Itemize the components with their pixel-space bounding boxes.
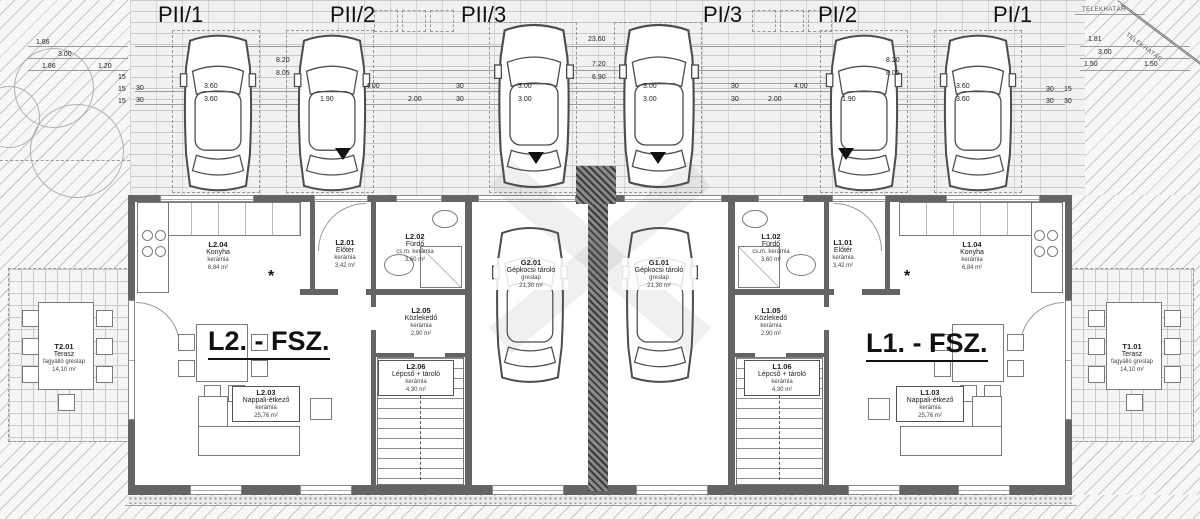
room-code: L1.01 xyxy=(814,238,872,247)
unit-title-right: L1. - FSZ. xyxy=(866,328,988,362)
dimension-label: 1.50 xyxy=(1144,61,1158,68)
wall xyxy=(862,289,900,295)
terrace-chair xyxy=(1164,338,1181,355)
room-material: kerámia xyxy=(381,379,451,386)
dimension-line xyxy=(370,70,830,71)
room-name: Terasz xyxy=(1100,351,1164,359)
entry-arrow-icon xyxy=(335,148,351,160)
room-name: Terasz xyxy=(32,351,96,359)
parking-label: PII/3 xyxy=(461,2,506,28)
dimension-line xyxy=(1080,70,1190,71)
room-code: L1.04 xyxy=(940,240,1004,249)
room-code: G1.01 xyxy=(622,258,696,267)
parking-label: PII/2 xyxy=(330,2,375,28)
room-name: Gépkocsi tároló xyxy=(622,267,696,275)
room-material: kerámia xyxy=(940,257,1004,264)
terrace-chair xyxy=(96,366,113,383)
room-name: Gépkocsi tároló xyxy=(494,267,568,275)
room-name: Nappali-étkező xyxy=(899,397,961,405)
dimension-label: 1.86 xyxy=(42,63,56,70)
window xyxy=(492,485,564,495)
room-name: Lépcső + tároló xyxy=(381,371,451,379)
hob-burner xyxy=(142,246,153,257)
dimension-line xyxy=(1080,58,1190,59)
terrace-glass-door xyxy=(1065,300,1072,420)
dimension-label: 3.00 xyxy=(58,51,72,58)
dining-chair xyxy=(178,334,195,351)
dimension-line xyxy=(28,70,128,71)
window xyxy=(958,485,1010,495)
dimension-line xyxy=(135,46,1065,47)
dimension-label: 1.90 xyxy=(320,96,334,103)
wall xyxy=(300,289,338,295)
dining-chair xyxy=(1007,334,1024,351)
dimension-label: 15 xyxy=(118,86,126,93)
hob-burner xyxy=(1047,246,1058,257)
dimension-label: 3.60 xyxy=(204,96,218,103)
terrace-chair xyxy=(1088,310,1105,327)
dining-chair xyxy=(178,360,195,377)
room-code: L2.06 xyxy=(381,362,451,371)
dimension-label: 3.00 xyxy=(643,96,657,103)
wall xyxy=(371,295,376,307)
dimension-label: 1.50 xyxy=(1084,61,1098,68)
window xyxy=(848,485,900,495)
garage-door xyxy=(624,195,722,202)
room-area: 25,76 m² xyxy=(899,413,961,420)
room-area: 4,30 m² xyxy=(747,387,817,394)
window xyxy=(758,195,804,202)
setback-dashed-line xyxy=(0,160,130,161)
room-area: 3,60 m² xyxy=(386,257,444,264)
entry-door-opening xyxy=(832,195,886,202)
room-label-g1-01: G1.01 Gépkocsi tároló greslap 21,30 m² xyxy=(622,258,696,290)
dimension-label: 8.05 xyxy=(886,70,900,77)
room-label-t1-01: T1.01 Terasz fagyálló greslap 14,10 m² xyxy=(1100,342,1164,374)
terrace-chair xyxy=(1164,366,1181,383)
dimension-label: 15 xyxy=(118,74,126,81)
room-area: 21,30 m² xyxy=(622,283,696,290)
wall xyxy=(824,295,829,307)
room-material: greslap xyxy=(494,275,568,282)
armchair xyxy=(310,398,332,420)
room-code: L1.05 xyxy=(736,306,806,315)
floor-plan-canvas: TELEKHATÁR TELEKHATÁR xyxy=(0,0,1200,519)
entry-door-opening xyxy=(314,195,368,202)
room-name: Fürdő xyxy=(742,241,800,249)
room-code: T2.01 xyxy=(32,342,96,351)
dimension-label: 8.05 xyxy=(276,70,290,77)
dimension-label: 2.00 xyxy=(768,96,782,103)
toilet xyxy=(432,210,458,228)
room-material: fagyálló greslap xyxy=(1100,359,1164,366)
wall xyxy=(824,330,829,491)
dimension-label: 30 xyxy=(731,96,739,103)
dimension-label: 1.81 xyxy=(1088,36,1102,43)
room-code: T1.01 xyxy=(1100,342,1164,351)
terrace-glass-door xyxy=(128,300,135,420)
dimension-label: 1.20 xyxy=(98,63,112,70)
room-name: Nappali-étkező xyxy=(235,397,297,405)
dimension-label: 30 xyxy=(731,83,739,90)
hob-burner xyxy=(142,230,153,241)
armchair xyxy=(868,398,890,420)
room-label-l1-06: L1.06 Lépcső + tároló kerámia 4,30 m² xyxy=(744,360,820,396)
dimension-line xyxy=(370,83,830,84)
room-code: L2.05 xyxy=(386,306,456,315)
parking-label: PI/1 xyxy=(993,2,1032,28)
room-name: Előtér xyxy=(814,247,872,255)
hob-burner xyxy=(155,230,166,241)
hob-burner xyxy=(1034,246,1045,257)
room-area: 14,10 m² xyxy=(32,367,96,374)
toilet xyxy=(742,210,768,228)
dimension-label: 4.00 xyxy=(794,83,808,90)
entry-arrow-icon xyxy=(650,152,666,164)
entry-arrow-icon xyxy=(838,148,854,160)
room-code: L2.02 xyxy=(386,232,444,241)
boundary-label: TELEKHATÁR xyxy=(1082,7,1126,13)
dimension-label: 30 xyxy=(456,83,464,90)
dimension-label: 30 xyxy=(1046,86,1054,93)
car-top-view-icon xyxy=(292,28,372,196)
tree-circle xyxy=(30,104,124,198)
dining-chair xyxy=(1007,360,1024,377)
room-label-l2-06: L2.06 Lépcső + tároló kerámia 4,30 m² xyxy=(378,360,454,396)
dimension-label: 15 xyxy=(1064,86,1072,93)
room-label-l2-05: L2.05 Közlekedő kerámia 2,90 m² xyxy=(386,306,456,338)
window xyxy=(636,485,708,495)
car-top-view-icon xyxy=(494,16,574,194)
window xyxy=(946,195,1040,202)
room-material: cs.m. kerámia xyxy=(386,249,444,256)
room-area: 3,60 m² xyxy=(742,257,800,264)
parking-label: PI/2 xyxy=(818,2,857,28)
room-material: kerámia xyxy=(386,323,456,330)
room-label-g2-01: G2.01 Gépkocsi tároló greslap 21,30 m² xyxy=(494,258,568,290)
window xyxy=(300,485,352,495)
hob-burner xyxy=(155,246,166,257)
room-area: 3,42 m² xyxy=(316,263,374,270)
dimension-label: 3.60 xyxy=(956,83,970,90)
wall-garage-right xyxy=(728,202,735,491)
ground-hatch-top-right xyxy=(1085,0,1200,195)
planter-dashed xyxy=(780,10,804,32)
parking-label: PI/3 xyxy=(703,2,742,28)
car-top-view-icon xyxy=(492,216,568,392)
dimension-label: 7.20 xyxy=(592,61,606,68)
room-material: kerámia xyxy=(235,405,297,412)
dimension-label: 30 xyxy=(1046,98,1054,105)
room-name: Konyha xyxy=(186,249,250,257)
room-material: kerámia xyxy=(747,379,817,386)
room-area: 14,10 m² xyxy=(1100,367,1164,374)
room-area: 6,84 m² xyxy=(940,265,1004,272)
room-code: L2.04 xyxy=(186,240,250,249)
room-label-l1-05: L1.05 Közlekedő kerámia 2,90 m² xyxy=(736,306,806,338)
dimension-label: 3.00 xyxy=(518,83,532,90)
room-area: 21,30 m² xyxy=(494,283,568,290)
wall xyxy=(885,202,890,292)
entry-arrow-icon xyxy=(528,152,544,164)
dining-chair xyxy=(251,360,268,377)
room-code: G2.01 xyxy=(494,258,568,267)
room-code: L2.03 xyxy=(235,388,297,397)
car-top-view-icon xyxy=(824,28,904,196)
terrace-chair xyxy=(96,310,113,327)
dimension-line xyxy=(125,505,1077,506)
room-label-l2-03: L2.03 Nappali-étkező kerámia 25,76 m² xyxy=(232,386,300,422)
garage-door xyxy=(478,195,576,202)
room-label-l1-04: L1.04 Konyha kerámia 6,84 m² xyxy=(940,240,1004,272)
terrace-chair xyxy=(58,394,75,411)
parking-label: PII/1 xyxy=(158,2,203,28)
room-name: Előtér xyxy=(316,247,374,255)
dimension-label: 30 xyxy=(136,85,144,92)
room-label-l2-04: L2.04 Konyha kerámia 6,84 m² xyxy=(186,240,250,272)
wall xyxy=(366,289,472,295)
room-code: L1.03 xyxy=(899,388,961,397)
room-material: fagyálló greslap xyxy=(32,359,96,366)
planter-dashed xyxy=(374,10,398,32)
terrace-chair xyxy=(1126,394,1143,411)
room-code: L2.01 xyxy=(316,238,374,247)
room-material: kerámia xyxy=(814,255,872,262)
room-area: 6,84 m² xyxy=(186,265,250,272)
dimension-line xyxy=(1080,46,1190,47)
party-wall-pier xyxy=(576,166,616,204)
room-material: kerámia xyxy=(316,255,374,262)
dimension-label: 3.00 xyxy=(643,83,657,90)
terrace-chair xyxy=(96,338,113,355)
room-name: Közlekedő xyxy=(386,315,456,323)
dimension-label: 8.20 xyxy=(886,57,900,64)
dining-chair xyxy=(934,360,951,377)
sofa xyxy=(198,426,300,456)
dimension-line xyxy=(135,104,1065,105)
window xyxy=(190,485,242,495)
room-area: 3,42 m² xyxy=(814,263,872,270)
window xyxy=(160,195,254,202)
dimension-label: 3.00 xyxy=(1098,49,1112,56)
hob-burner xyxy=(1047,230,1058,241)
asterisk-symbol: * xyxy=(268,268,274,286)
car-top-view-icon xyxy=(938,28,1018,196)
terrace-chair xyxy=(1164,310,1181,327)
room-name: Közlekedő xyxy=(736,315,806,323)
room-label-l1-01: L1.01 Előtér kerámia 3,42 m² xyxy=(814,238,872,270)
dimension-label: 30 xyxy=(136,97,144,104)
party-wall xyxy=(588,204,608,491)
room-material: kerámia xyxy=(186,257,250,264)
room-material: kerámia xyxy=(899,405,961,412)
asterisk-symbol: * xyxy=(904,268,910,286)
room-name: Lépcső + tároló xyxy=(747,371,817,379)
dimension-label: 30 xyxy=(1064,98,1072,105)
planter-dashed xyxy=(402,10,426,32)
room-name: Konyha xyxy=(940,249,1004,257)
dimension-label: 2.00 xyxy=(408,96,422,103)
unit-title-left: L2. - FSZ. xyxy=(208,326,330,360)
room-label-l1-03: L1.03 Nappali-étkező kerámia 25,76 m² xyxy=(896,386,964,422)
room-area: 4,30 m² xyxy=(381,387,451,394)
gravel-strip xyxy=(128,496,1072,504)
wall-garage-left xyxy=(465,202,472,491)
sofa xyxy=(900,426,1002,456)
car-top-view-icon xyxy=(619,16,699,194)
car-top-view-icon xyxy=(622,216,698,392)
dimension-label: 3.00 xyxy=(518,96,532,103)
room-area: 25,76 m² xyxy=(235,413,297,420)
room-label-t2-01: T2.01 Terasz fagyálló greslap 14,10 m² xyxy=(32,342,96,374)
dimension-label: 4.00 xyxy=(366,83,380,90)
room-code: L1.06 xyxy=(747,362,817,371)
room-label-l2-02: L2.02 Fürdő cs.m. kerámia 3,60 m² xyxy=(386,232,444,264)
dimension-label: 1.86 xyxy=(36,39,50,46)
dimension-label: 3.60 xyxy=(956,96,970,103)
dimension-label: 15 xyxy=(118,98,126,105)
room-label-l1-02: L1.02 Fürdő cs.m. kerámia 3,60 m² xyxy=(742,232,800,264)
wall xyxy=(310,202,315,292)
dimension-label: 30 xyxy=(456,96,464,103)
room-name: Fürdő xyxy=(386,241,444,249)
room-material: cs.m. kerámia xyxy=(742,249,800,256)
window xyxy=(396,195,442,202)
room-area: 2,90 m² xyxy=(736,331,806,338)
car-top-view-icon xyxy=(178,28,258,196)
room-label-l2-01: L2.01 Előtér kerámia 3,42 m² xyxy=(316,238,374,270)
dimension-line xyxy=(28,58,128,59)
room-area: 2,90 m² xyxy=(386,331,456,338)
dimension-label: 23.60 xyxy=(588,36,606,43)
planter-dashed xyxy=(752,10,776,32)
dimension-label: 1.90 xyxy=(842,96,856,103)
hob-burner xyxy=(1034,230,1045,241)
wall xyxy=(728,289,834,295)
dimension-label: 3.60 xyxy=(204,83,218,90)
dimension-line xyxy=(135,91,1065,92)
planter-dashed xyxy=(430,10,454,32)
room-material: greslap xyxy=(622,275,696,282)
dimension-label: 6.90 xyxy=(592,74,606,81)
room-material: kerámia xyxy=(736,323,806,330)
dimension-label: 8.20 xyxy=(276,57,290,64)
room-code: L1.02 xyxy=(742,232,800,241)
dimension-line xyxy=(28,46,128,47)
terrace-chair xyxy=(22,310,39,327)
